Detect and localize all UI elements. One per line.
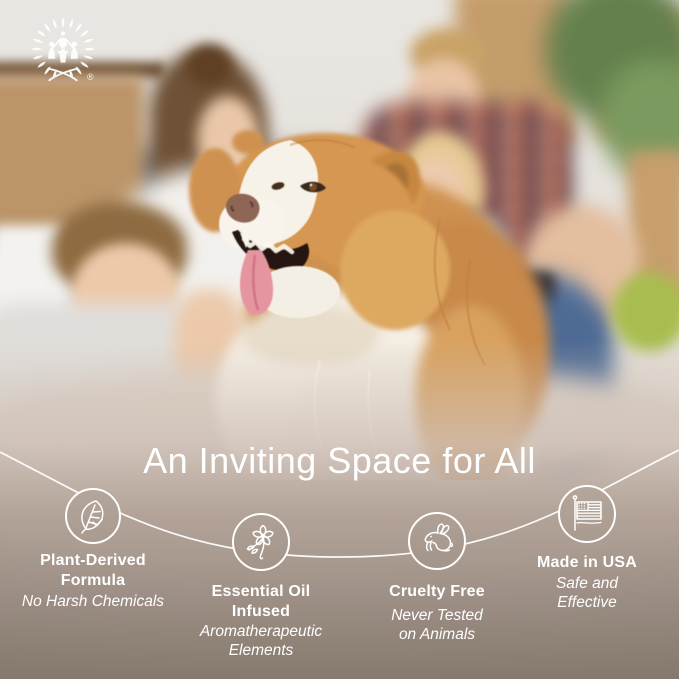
laurel-wreath-icon xyxy=(31,17,94,80)
feature-title-essential-oil: Essential Oil Infused xyxy=(176,582,346,622)
feature-subtitle-essential-oil: Aromatherapeutic Elements xyxy=(176,622,346,660)
trophy-and-children-icon xyxy=(48,31,77,62)
feature-subtitle-plant-derived: No Harsh Chemicals xyxy=(3,592,183,611)
feature-title-plant-derived: Plant-Derived Formula xyxy=(8,551,178,591)
registered-trademark: ® xyxy=(87,72,94,82)
headline: An Inviting Space for All xyxy=(0,440,679,482)
feature-title-made-in-usa: Made in USA xyxy=(502,553,672,573)
product-marketing-image: ® An Inviting Space for All xyxy=(0,0,679,679)
feature-subtitle-cruelty-free: Never Tested on Animals xyxy=(352,606,522,644)
feature-subtitle-made-in-usa: Safe and Effective xyxy=(502,574,672,612)
feature-title-cruelty-free: Cruelty Free xyxy=(352,582,522,602)
photo-woman-bun xyxy=(186,44,232,86)
